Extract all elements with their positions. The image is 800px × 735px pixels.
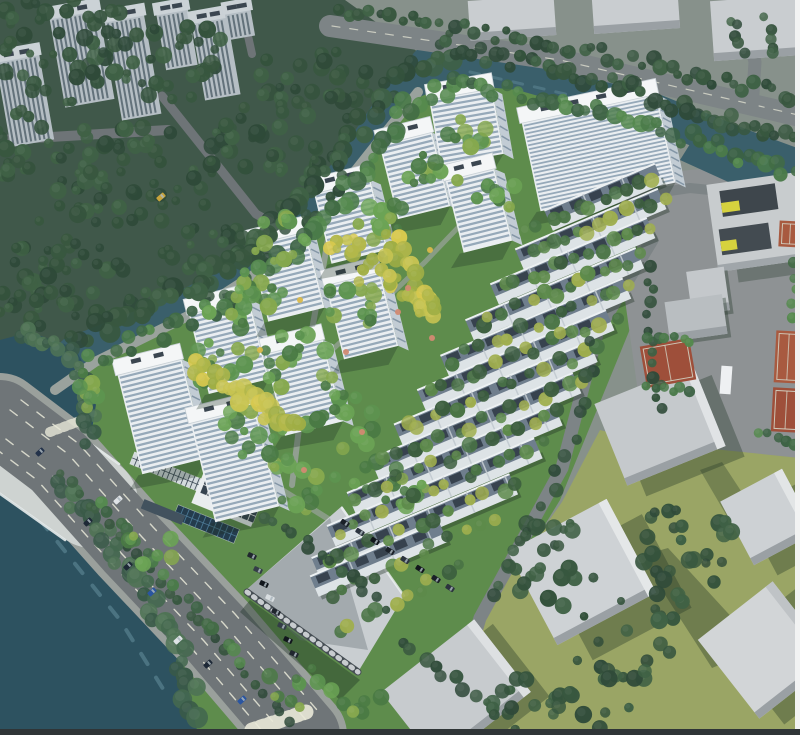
context-slab — [710, 0, 800, 61]
aerial-scene — [0, 0, 800, 735]
context-slab — [592, 0, 680, 34]
right-margin — [795, 0, 800, 735]
bus — [720, 366, 733, 395]
masterplan-rendering-page — [0, 0, 800, 735]
bottom-margin — [0, 729, 800, 735]
aerial-scene-canvas — [0, 0, 800, 735]
